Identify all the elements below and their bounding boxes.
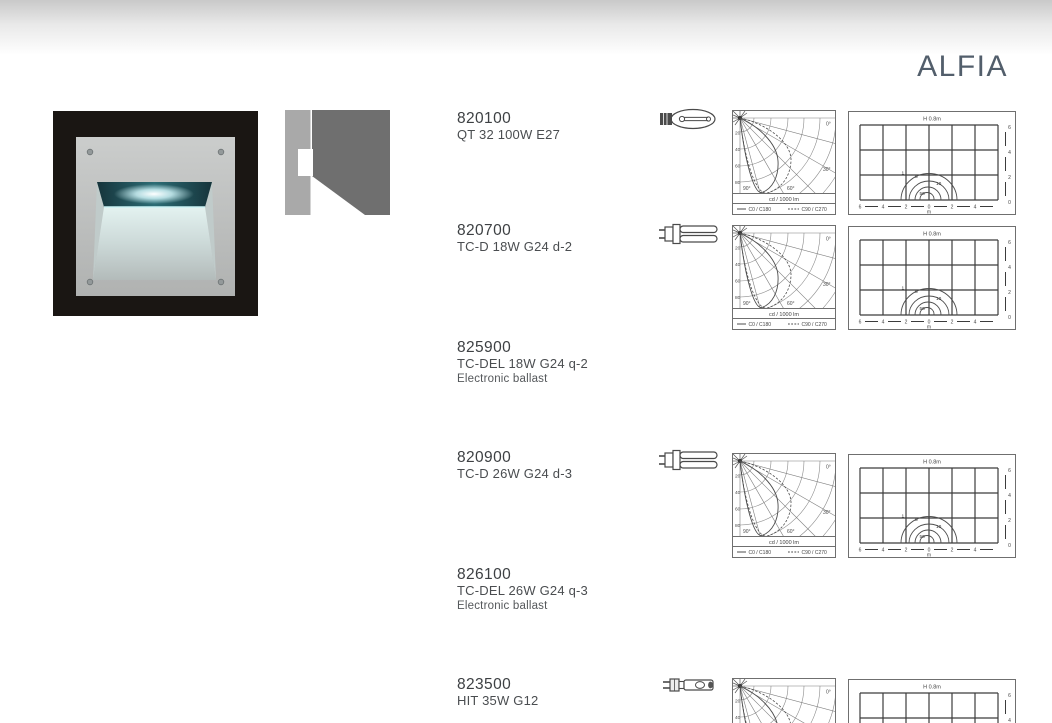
- angle-label: 90°: [743, 529, 751, 535]
- x-axis-label: 4: [882, 205, 885, 211]
- radius-label: 40: [735, 490, 741, 496]
- radius-label: 60: [735, 279, 741, 285]
- product-photo: [53, 111, 258, 316]
- contour-label: 5: [915, 174, 918, 180]
- product-code: 820700: [457, 222, 572, 239]
- mounting-height-label: H 0.8m: [923, 117, 941, 123]
- x-axis-label: 2: [905, 205, 908, 211]
- x-axis-label: 4: [974, 320, 977, 326]
- y-axis-label: 4: [1008, 718, 1011, 723]
- x-axis-label: 2: [905, 320, 908, 326]
- y-axis-label: 0: [1008, 543, 1011, 549]
- y-axis-label: 4: [1008, 265, 1011, 271]
- radius-label: 40: [735, 715, 741, 721]
- y-axis-label: 6: [1008, 468, 1011, 474]
- radius-label: 20: [735, 474, 741, 480]
- radius-label: 80: [735, 180, 741, 186]
- product-note: Electronic ballast: [457, 372, 588, 387]
- photometry-diagrams: 20 40 60 80 90° 60° 30° 0° cd / 1000 lm …: [732, 225, 1016, 331]
- contour-label: 50: [920, 534, 926, 540]
- photometry-diagrams: 20 40 60 80 90° 60° 30° 0° cd / 1000 lm …: [732, 453, 1016, 559]
- x-axis-label: 2: [905, 548, 908, 554]
- mounting-icon: [285, 110, 390, 215]
- mounting-height-label: H 0.8m: [923, 460, 941, 466]
- angle-label: 0°: [826, 690, 831, 696]
- contour-label: 50: [920, 191, 926, 197]
- y-axis-label: 4: [1008, 493, 1011, 499]
- radius-label: 80: [735, 523, 741, 529]
- contour-label: 1: [902, 514, 905, 520]
- x-axis-label: 6: [859, 205, 862, 211]
- angle-label: 90°: [743, 301, 751, 307]
- product-note: Electronic ballast: [457, 599, 588, 614]
- x-axis-label: 2: [951, 320, 954, 326]
- polar-unit-label: cd / 1000 lm: [769, 197, 799, 203]
- angle-label: 30°: [823, 167, 831, 173]
- halogen-qt-e27-lamp-icon: [658, 107, 718, 136]
- product-entry: 826100 TC-DEL 26W G24 q-3 Electronic bal…: [457, 566, 588, 614]
- axis-unit-label: m: [927, 210, 931, 216]
- mounting-height-label: H 0.8m: [923, 232, 941, 238]
- radius-label: 60: [735, 507, 741, 513]
- legend-c90-c270: C90 / C270: [802, 550, 828, 556]
- legend-c0-c180: C0 / C180: [749, 207, 772, 213]
- y-axis-label: 0: [1008, 200, 1011, 206]
- mounting-height-label: H 0.8m: [923, 685, 941, 691]
- legend-c0-c180: C0 / C180: [749, 550, 772, 556]
- product-lamp-spec: TC-DEL 26W G24 q-3: [457, 583, 588, 599]
- x-axis-label: 4: [974, 205, 977, 211]
- legend-c90-c270: C90 / C270: [802, 322, 828, 328]
- angle-label: 60°: [787, 301, 795, 307]
- angle-label: 60°: [787, 529, 795, 535]
- angle-label: 90°: [743, 186, 751, 192]
- hit-g12-metal-halide-lamp-icon: [662, 673, 720, 702]
- radius-label: 60: [735, 164, 741, 170]
- x-axis-label: 2: [951, 205, 954, 211]
- contour-label: 5: [915, 289, 918, 295]
- angle-label: 0°: [826, 237, 831, 243]
- product-lamp-spec: QT 32 100W E27: [457, 127, 560, 143]
- product-entry: 820900 TC-D 26W G24 d-3: [457, 449, 572, 482]
- y-axis-label: 2: [1008, 518, 1011, 524]
- contour-label: 10: [936, 296, 942, 302]
- product-lamp-spec: TC-DEL 18W G24 q-2: [457, 356, 588, 372]
- y-axis-label: 0: [1008, 315, 1011, 321]
- page-title: ALFIA: [917, 50, 1008, 84]
- x-axis-label: 6: [859, 548, 862, 554]
- product-entry: 825900 TC-DEL 18W G24 q-2 Electronic bal…: [457, 339, 588, 387]
- y-axis-label: 6: [1008, 240, 1011, 246]
- radius-label: 40: [735, 147, 741, 153]
- legend-c0-c180: C0 / C180: [749, 322, 772, 328]
- radius-label: 20: [735, 246, 741, 252]
- contour-label: 1: [902, 286, 905, 292]
- polar-intensity-diagram: 20 40 60 80 90° 60° 30° 0° cd / 1000 lm …: [732, 678, 836, 723]
- wall-recessed-downlight-mounting-icon: [285, 110, 390, 215]
- product-code: 826100: [457, 566, 588, 583]
- x-axis-label: 4: [882, 548, 885, 554]
- legend-c90-c270: C90 / C270: [802, 207, 828, 213]
- polar-unit-label: cd / 1000 lm: [769, 540, 799, 546]
- catalog-page: ALFIA: [0, 0, 1052, 723]
- product-code: 825900: [457, 339, 588, 356]
- isolux-cone-diagram: H 0.8m 1 5 10 50: [848, 454, 1016, 558]
- polar-intensity-diagram: 20 40 60 80 90° 60° 30° 0° cd / 1000 lm …: [732, 110, 836, 215]
- polar-intensity-diagram: 20 40 60 80 90° 60° 30° 0° cd / 1000 lm …: [732, 225, 836, 330]
- photometry-diagrams: 20 40 60 80 90° 60° 30° 0° cd / 1000 lm …: [732, 110, 1016, 216]
- isolux-cone-diagram: H 0.8m 1 5 10 50: [848, 679, 1016, 723]
- product-entry: 823500 HIT 35W G12: [457, 676, 538, 709]
- y-axis-label: 6: [1008, 125, 1011, 131]
- product-code: 820900: [457, 449, 572, 466]
- page-top-gradient: [0, 0, 1052, 55]
- photometry-diagrams: 20 40 60 80 90° 60° 30° 0° cd / 1000 lm …: [732, 678, 1016, 723]
- product-code: 823500: [457, 676, 538, 693]
- x-axis-label: 4: [882, 320, 885, 326]
- tc-d-compact-fluorescent-lamp-icon: [658, 446, 720, 479]
- y-axis-label: 2: [1008, 175, 1011, 181]
- x-axis-label: 2: [951, 548, 954, 554]
- product-lamp-spec: TC-D 18W G24 d-2: [457, 239, 572, 255]
- angle-label: 0°: [826, 465, 831, 471]
- contour-label: 1: [902, 171, 905, 177]
- y-axis-label: 2: [1008, 290, 1011, 296]
- contour-label: 10: [936, 181, 942, 187]
- isolux-cone-diagram: H 0.8m 1 5 10 50: [848, 111, 1016, 215]
- product-code: 820100: [457, 110, 560, 127]
- contour-label: 5: [915, 517, 918, 523]
- radius-label: 80: [735, 295, 741, 301]
- angle-label: 30°: [823, 282, 831, 288]
- radius-label: 40: [735, 262, 741, 268]
- product-lamp-spec: HIT 35W G12: [457, 693, 538, 709]
- recessed-wall-luminaire-photo: [53, 111, 258, 316]
- contour-label: 10: [936, 524, 942, 530]
- product-entry: 820700 TC-D 18W G24 d-2: [457, 222, 572, 255]
- axis-unit-label: m: [927, 325, 931, 331]
- axis-unit-label: m: [927, 553, 931, 559]
- y-axis-label: 6: [1008, 693, 1011, 699]
- product-entry: 820100 QT 32 100W E27: [457, 110, 560, 143]
- product-lamp-spec: TC-D 26W G24 d-3: [457, 466, 572, 482]
- tc-d-compact-fluorescent-lamp-icon: [658, 220, 720, 253]
- polar-intensity-diagram: 20 40 60 80 90° 60° 30° 0° cd / 1000 lm …: [732, 453, 836, 558]
- isolux-cone-diagram: H 0.8m 1 5 10 50: [848, 226, 1016, 330]
- angle-label: 60°: [787, 186, 795, 192]
- x-axis-label: 6: [859, 320, 862, 326]
- x-axis-label: 4: [974, 548, 977, 554]
- radius-label: 20: [735, 131, 741, 137]
- radius-label: 20: [735, 699, 741, 705]
- polar-unit-label: cd / 1000 lm: [769, 312, 799, 318]
- contour-label: 50: [920, 306, 926, 312]
- angle-label: 0°: [826, 122, 831, 128]
- angle-label: 30°: [823, 510, 831, 516]
- y-axis-label: 4: [1008, 150, 1011, 156]
